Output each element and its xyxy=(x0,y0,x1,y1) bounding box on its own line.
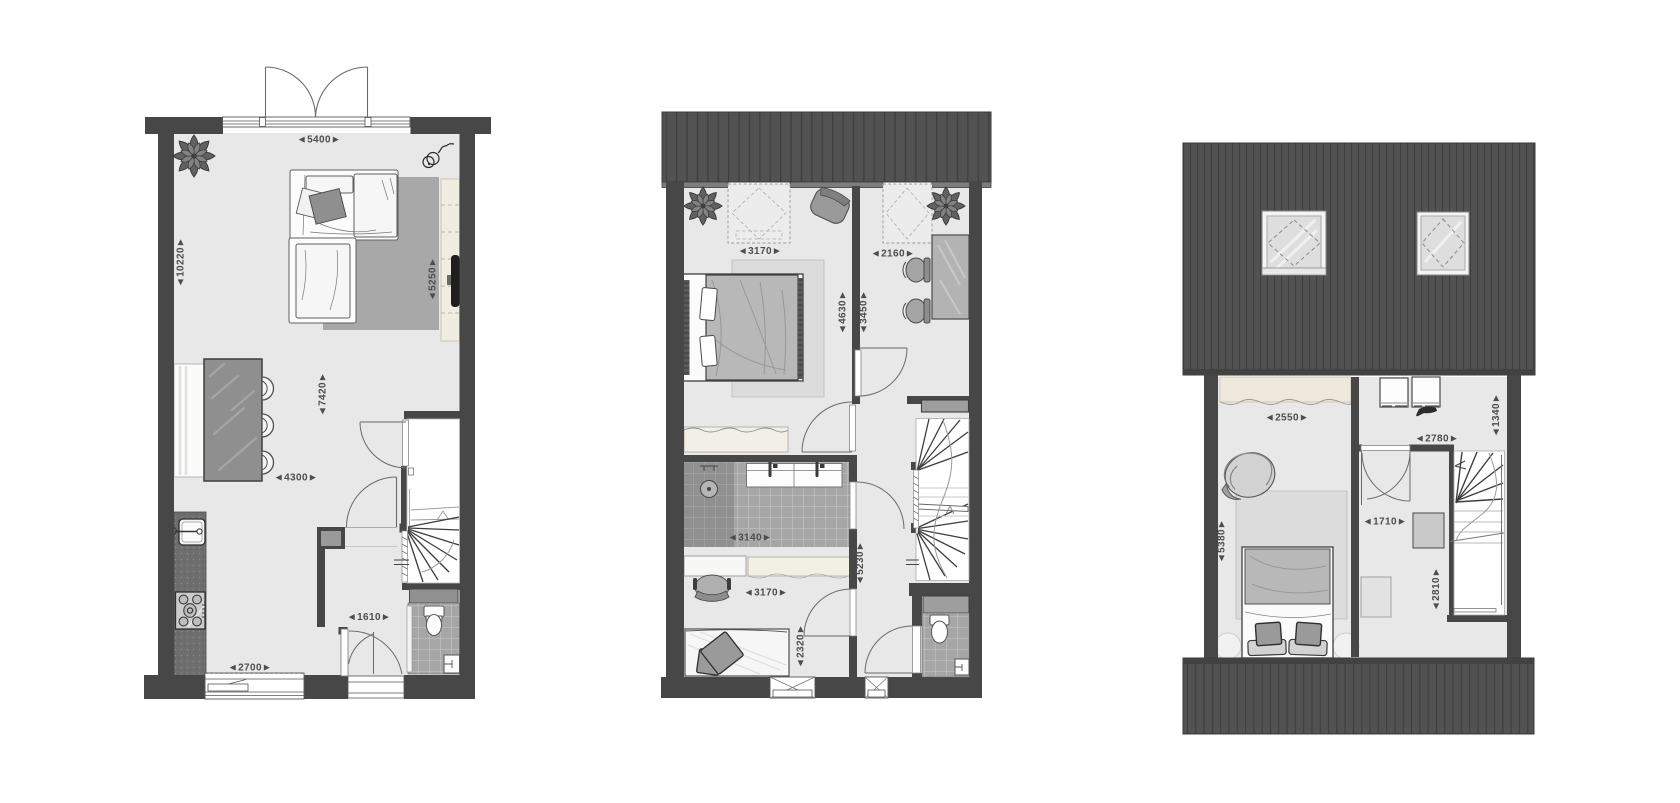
svg-text:◄2810►: ◄2810► xyxy=(1431,567,1442,611)
svg-text:◄2550►: ◄2550► xyxy=(1265,413,1309,424)
svg-text:◄4630►: ◄4630► xyxy=(838,290,849,334)
svg-text:◄3170►: ◄3170► xyxy=(738,246,782,257)
svg-text:◄2700►: ◄2700► xyxy=(228,663,272,674)
svg-text:◄5230►: ◄5230► xyxy=(855,541,866,585)
svg-text:◄2780►: ◄2780► xyxy=(1415,434,1459,445)
svg-text:◄3170►: ◄3170► xyxy=(744,588,788,599)
svg-text:◄4300►: ◄4300► xyxy=(274,473,318,484)
svg-text:◄10220►: ◄10220► xyxy=(176,237,187,287)
svg-text:◄5380►: ◄5380► xyxy=(1217,519,1228,563)
svg-text:◄2160►: ◄2160► xyxy=(871,249,915,260)
svg-text:◄3450►: ◄3450► xyxy=(859,290,870,334)
svg-text:◄3140►: ◄3140► xyxy=(728,533,772,544)
svg-text:◄7420►: ◄7420► xyxy=(318,372,329,416)
svg-text:◄2320►: ◄2320► xyxy=(796,624,807,668)
svg-text:◄1610►: ◄1610► xyxy=(347,612,391,623)
svg-text:◄5400►: ◄5400► xyxy=(297,135,341,146)
svg-text:◄5250►: ◄5250► xyxy=(428,257,439,301)
svg-text:◄1340►: ◄1340► xyxy=(1491,393,1502,437)
svg-text:◄1710►: ◄1710► xyxy=(1363,517,1407,528)
